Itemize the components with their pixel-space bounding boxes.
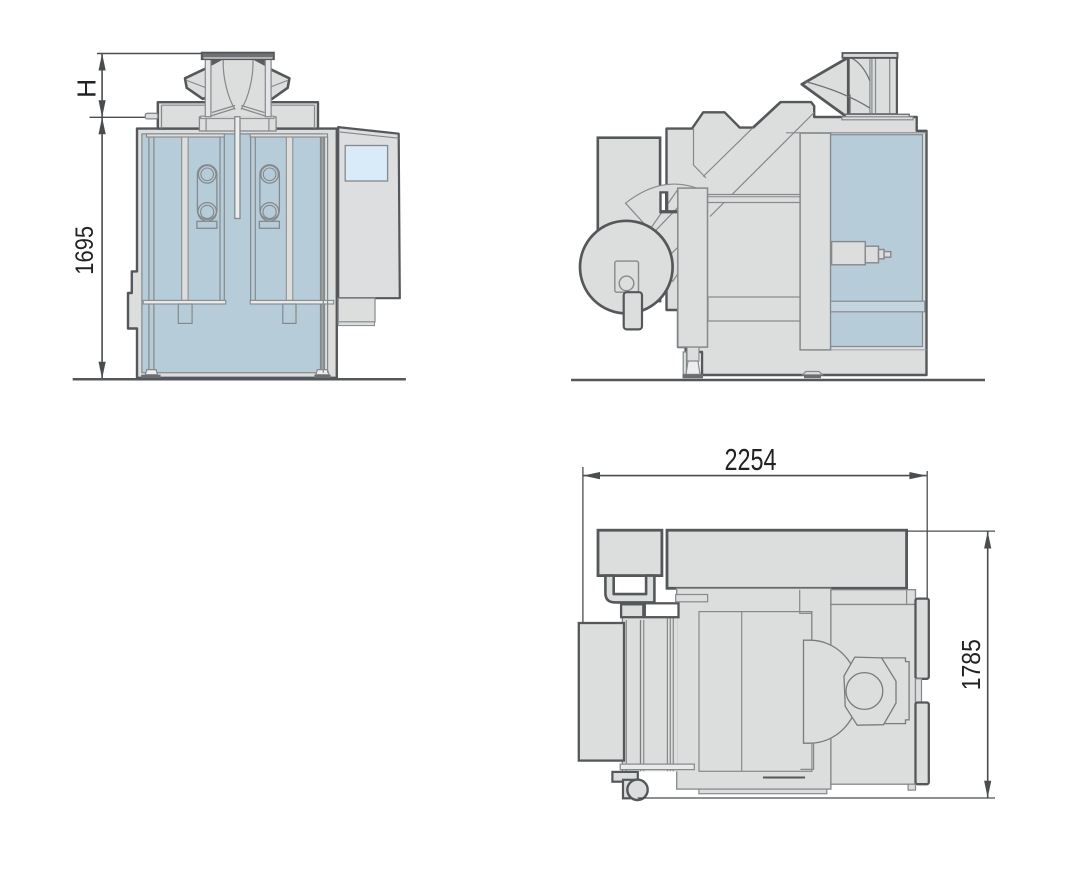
svg-text:1785: 1785 bbox=[956, 639, 986, 690]
svg-text:1695: 1695 bbox=[71, 226, 99, 275]
svg-text:2254: 2254 bbox=[724, 442, 776, 477]
svg-text:H: H bbox=[74, 79, 102, 98]
